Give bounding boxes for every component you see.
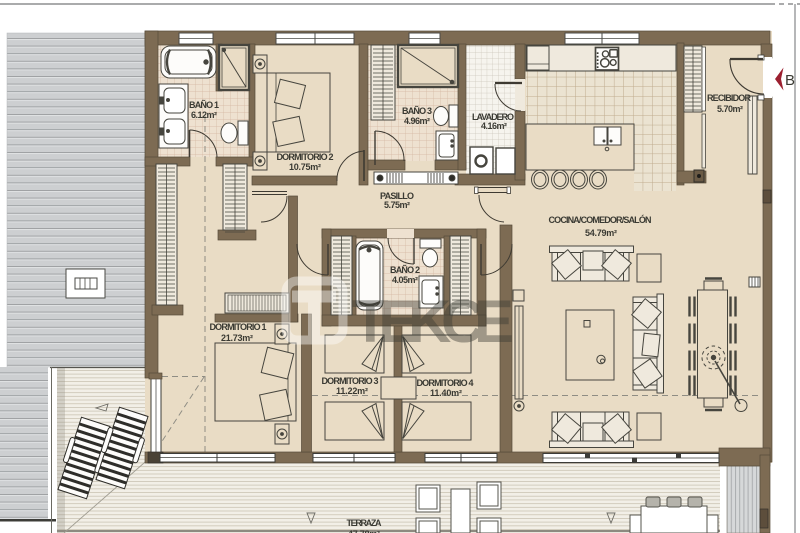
svg-text:DORMITORIO 4: DORMITORIO 4 (417, 378, 474, 388)
svg-text:TEKCE: TEKCE (352, 288, 514, 355)
svg-text:5.70m²: 5.70m² (717, 104, 743, 114)
svg-text:COCINA/COMEDOR/SALÓN: COCINA/COMEDOR/SALÓN (549, 214, 652, 225)
svg-text:21.73m²: 21.73m² (221, 333, 253, 343)
svg-text:DORMITORIO 1: DORMITORIO 1 (210, 322, 267, 332)
svg-text:4.16m²: 4.16m² (481, 121, 507, 131)
svg-text:5.75m²: 5.75m² (384, 200, 410, 210)
svg-text:BAÑO 1: BAÑO 1 (189, 100, 219, 110)
svg-text:6.12m²: 6.12m² (191, 110, 217, 120)
svg-text:11.22m²: 11.22m² (336, 386, 368, 396)
svg-text:4.96m²: 4.96m² (404, 116, 430, 126)
svg-text:47.78m²: 47.78m² (348, 529, 380, 533)
svg-text:54.79m²: 54.79m² (585, 228, 617, 238)
svg-text:DORMITORIO 3: DORMITORIO 3 (322, 376, 379, 386)
svg-text:11.40m²: 11.40m² (430, 388, 462, 398)
svg-text:B: B (785, 72, 795, 89)
svg-text:BAÑO 2: BAÑO 2 (390, 265, 420, 275)
svg-text:TERRAZA: TERRAZA (347, 518, 383, 528)
svg-text:DORMITORIO 2: DORMITORIO 2 (277, 152, 334, 162)
svg-text:BAÑO 3: BAÑO 3 (402, 106, 432, 116)
svg-text:4.05m²: 4.05m² (392, 275, 418, 285)
svg-text:10.75m²: 10.75m² (289, 162, 321, 172)
svg-text:RECIBIDOR: RECIBIDOR (707, 93, 752, 103)
